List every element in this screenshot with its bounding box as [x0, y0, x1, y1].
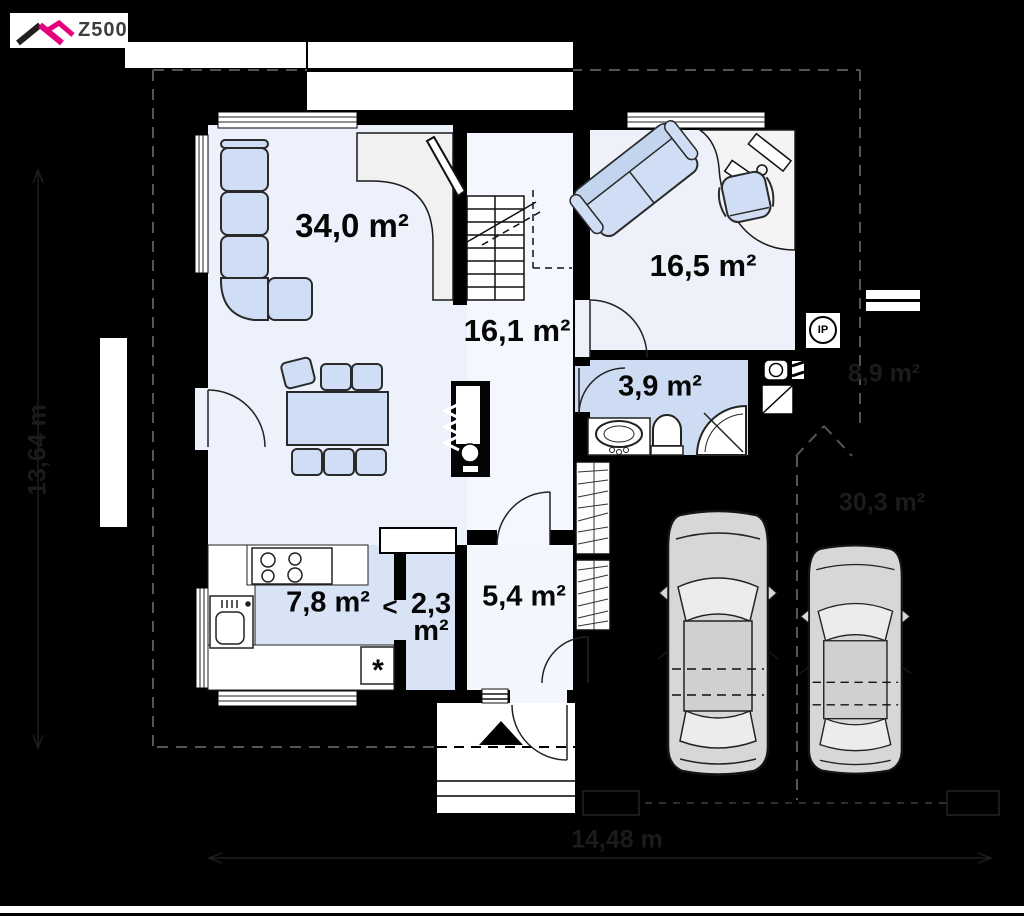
bathroom-door-opening: [575, 366, 590, 412]
logo-roof-icon: [14, 15, 76, 47]
bath-sink: [596, 421, 642, 447]
label-parking-area: 30,3 m²: [839, 489, 925, 518]
window-room-top: [627, 112, 765, 128]
window-kitchen-bottom: [218, 691, 357, 706]
label-total-width: 14,48 m: [571, 826, 663, 855]
chimney-icon: [762, 385, 793, 414]
dining-set: [280, 357, 388, 475]
label-total-depth: 13,64 m: [24, 404, 53, 496]
window-living-left: [195, 135, 208, 273]
fridge-star-mark: *: [372, 654, 384, 688]
pantry-arrow-mark: <: [382, 592, 397, 623]
wall-living-hall: [453, 125, 467, 305]
parking-markings: [583, 791, 999, 815]
logo-text: Z500: [78, 19, 128, 42]
logo-box: Z500: [10, 13, 128, 48]
label-pantry-area: 2,3 m²: [411, 591, 451, 645]
label-room-area: 16,5 m²: [650, 248, 757, 284]
room-door-opening: [575, 300, 590, 357]
vestibule-floor: [467, 545, 573, 690]
pantry-cabinet: [380, 528, 456, 553]
vent-hatch-icon: [792, 361, 804, 379]
front-door-opening: [510, 690, 567, 703]
shower: [697, 406, 746, 455]
label-hall-area: 16,1 m²: [464, 313, 571, 349]
car-1: [658, 511, 778, 775]
label-bathroom-area: 3,9 m²: [618, 371, 702, 404]
floor-plan-drawing: [0, 0, 1024, 916]
terrace-door-opening: [195, 388, 208, 450]
label-kitchen-area: 7,8 m²: [286, 587, 370, 620]
window-living-top: [218, 112, 357, 128]
floor-plan-page: Z500 34,0 m² 16,5 m² 16,1 m² 3,9 m² 7,8 …: [0, 0, 1024, 916]
ip-badge-box: IP: [806, 313, 840, 348]
toilet: [651, 415, 683, 455]
bottom-border-strip: [0, 906, 1024, 913]
wall-opening: [497, 530, 550, 545]
window-bars-right: [866, 290, 920, 311]
window-kitchen-left: [196, 588, 208, 688]
kitchen-sink: [210, 596, 253, 648]
ip-badge: IP: [809, 316, 837, 344]
pantry-area-unit: m²: [411, 618, 451, 645]
pantry-area-value: 2,3: [411, 591, 451, 618]
label-terrace-area: 8,9 m²: [848, 360, 920, 389]
label-vestibule-area: 5,4 m²: [482, 581, 566, 614]
terrace-strip: [100, 338, 127, 527]
fireplace: [445, 381, 490, 477]
threshold: [482, 689, 508, 703]
entrance-porch: [437, 689, 575, 813]
wall-kitchen-pantry-b: [394, 640, 406, 690]
upper-floor-outline: [125, 42, 573, 110]
installation-shaft: [762, 360, 804, 414]
wardrobe: [576, 462, 610, 630]
stove: [252, 548, 332, 584]
label-living-area: 34,0 m²: [295, 207, 409, 245]
band-divider: [306, 42, 308, 68]
car-2: [800, 545, 912, 773]
